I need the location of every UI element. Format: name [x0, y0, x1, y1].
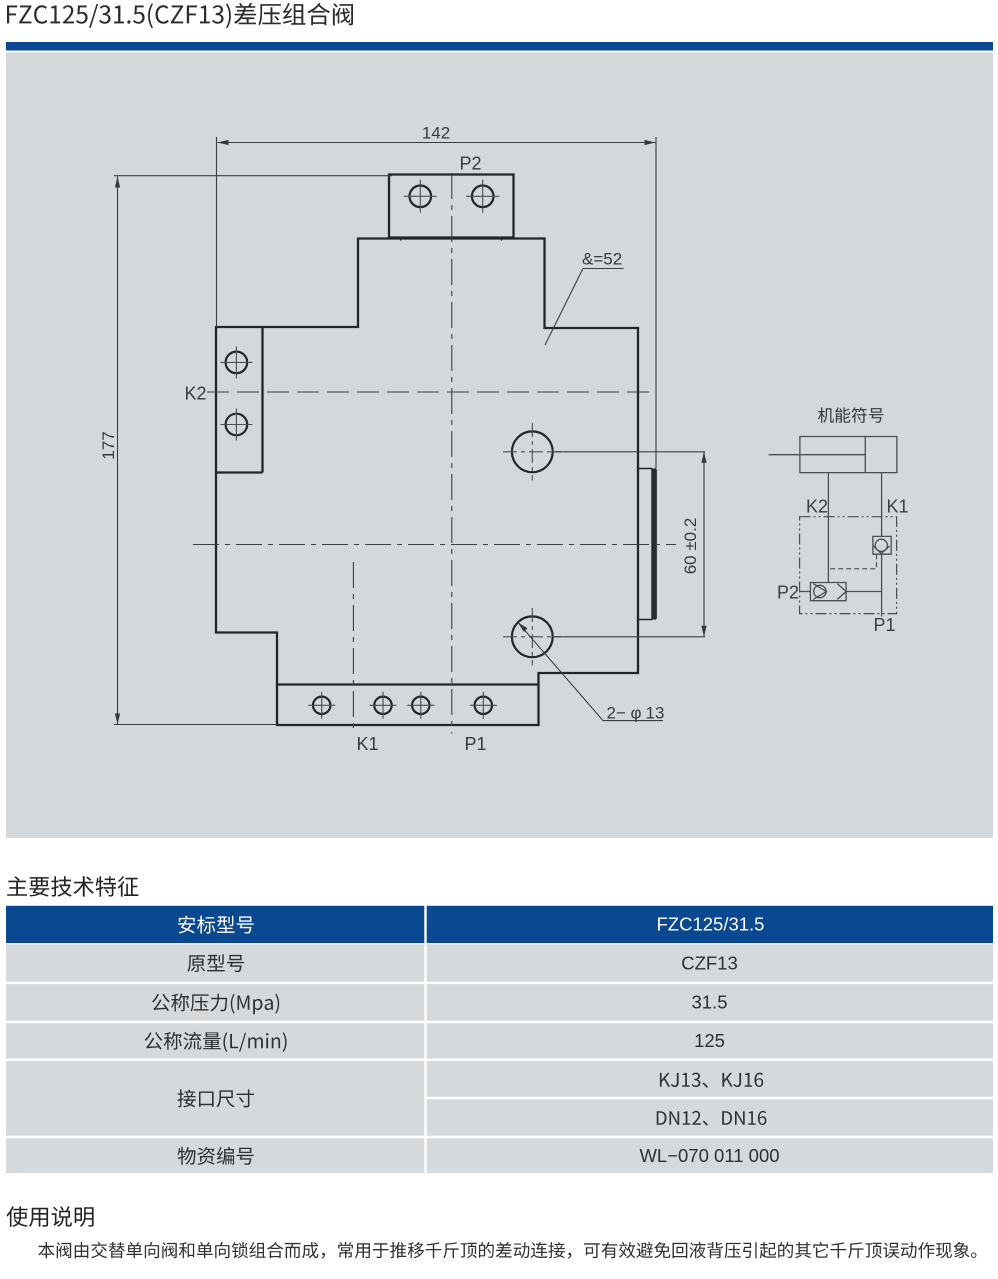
- svg-text:P2: P2: [777, 583, 799, 603]
- svg-text:K1: K1: [887, 497, 909, 517]
- svg-text:31.5: 31.5: [691, 992, 727, 1013]
- svg-text:125: 125: [694, 1030, 725, 1051]
- svg-text:K2: K2: [806, 497, 828, 517]
- svg-text:P1: P1: [874, 615, 896, 635]
- svg-text:φ: φ: [631, 703, 642, 722]
- svg-text:FZC125/31.5: FZC125/31.5: [657, 914, 765, 935]
- svg-text:142: 142: [422, 123, 450, 142]
- svg-text:13: 13: [646, 703, 665, 722]
- svg-text:P2: P2: [460, 154, 482, 174]
- svg-text:CZF13: CZF13: [681, 952, 738, 973]
- svg-text:WL−070 011 000: WL−070 011 000: [639, 1145, 779, 1166]
- svg-text:K2: K2: [185, 384, 207, 404]
- svg-text:P1: P1: [465, 734, 487, 754]
- svg-text:177: 177: [99, 431, 118, 459]
- svg-text:K1: K1: [357, 734, 379, 754]
- svg-text:60 ±0.2: 60 ±0.2: [681, 518, 700, 575]
- svg-text:&=52: &=52: [582, 250, 622, 269]
- svg-text:2−: 2−: [607, 703, 626, 722]
